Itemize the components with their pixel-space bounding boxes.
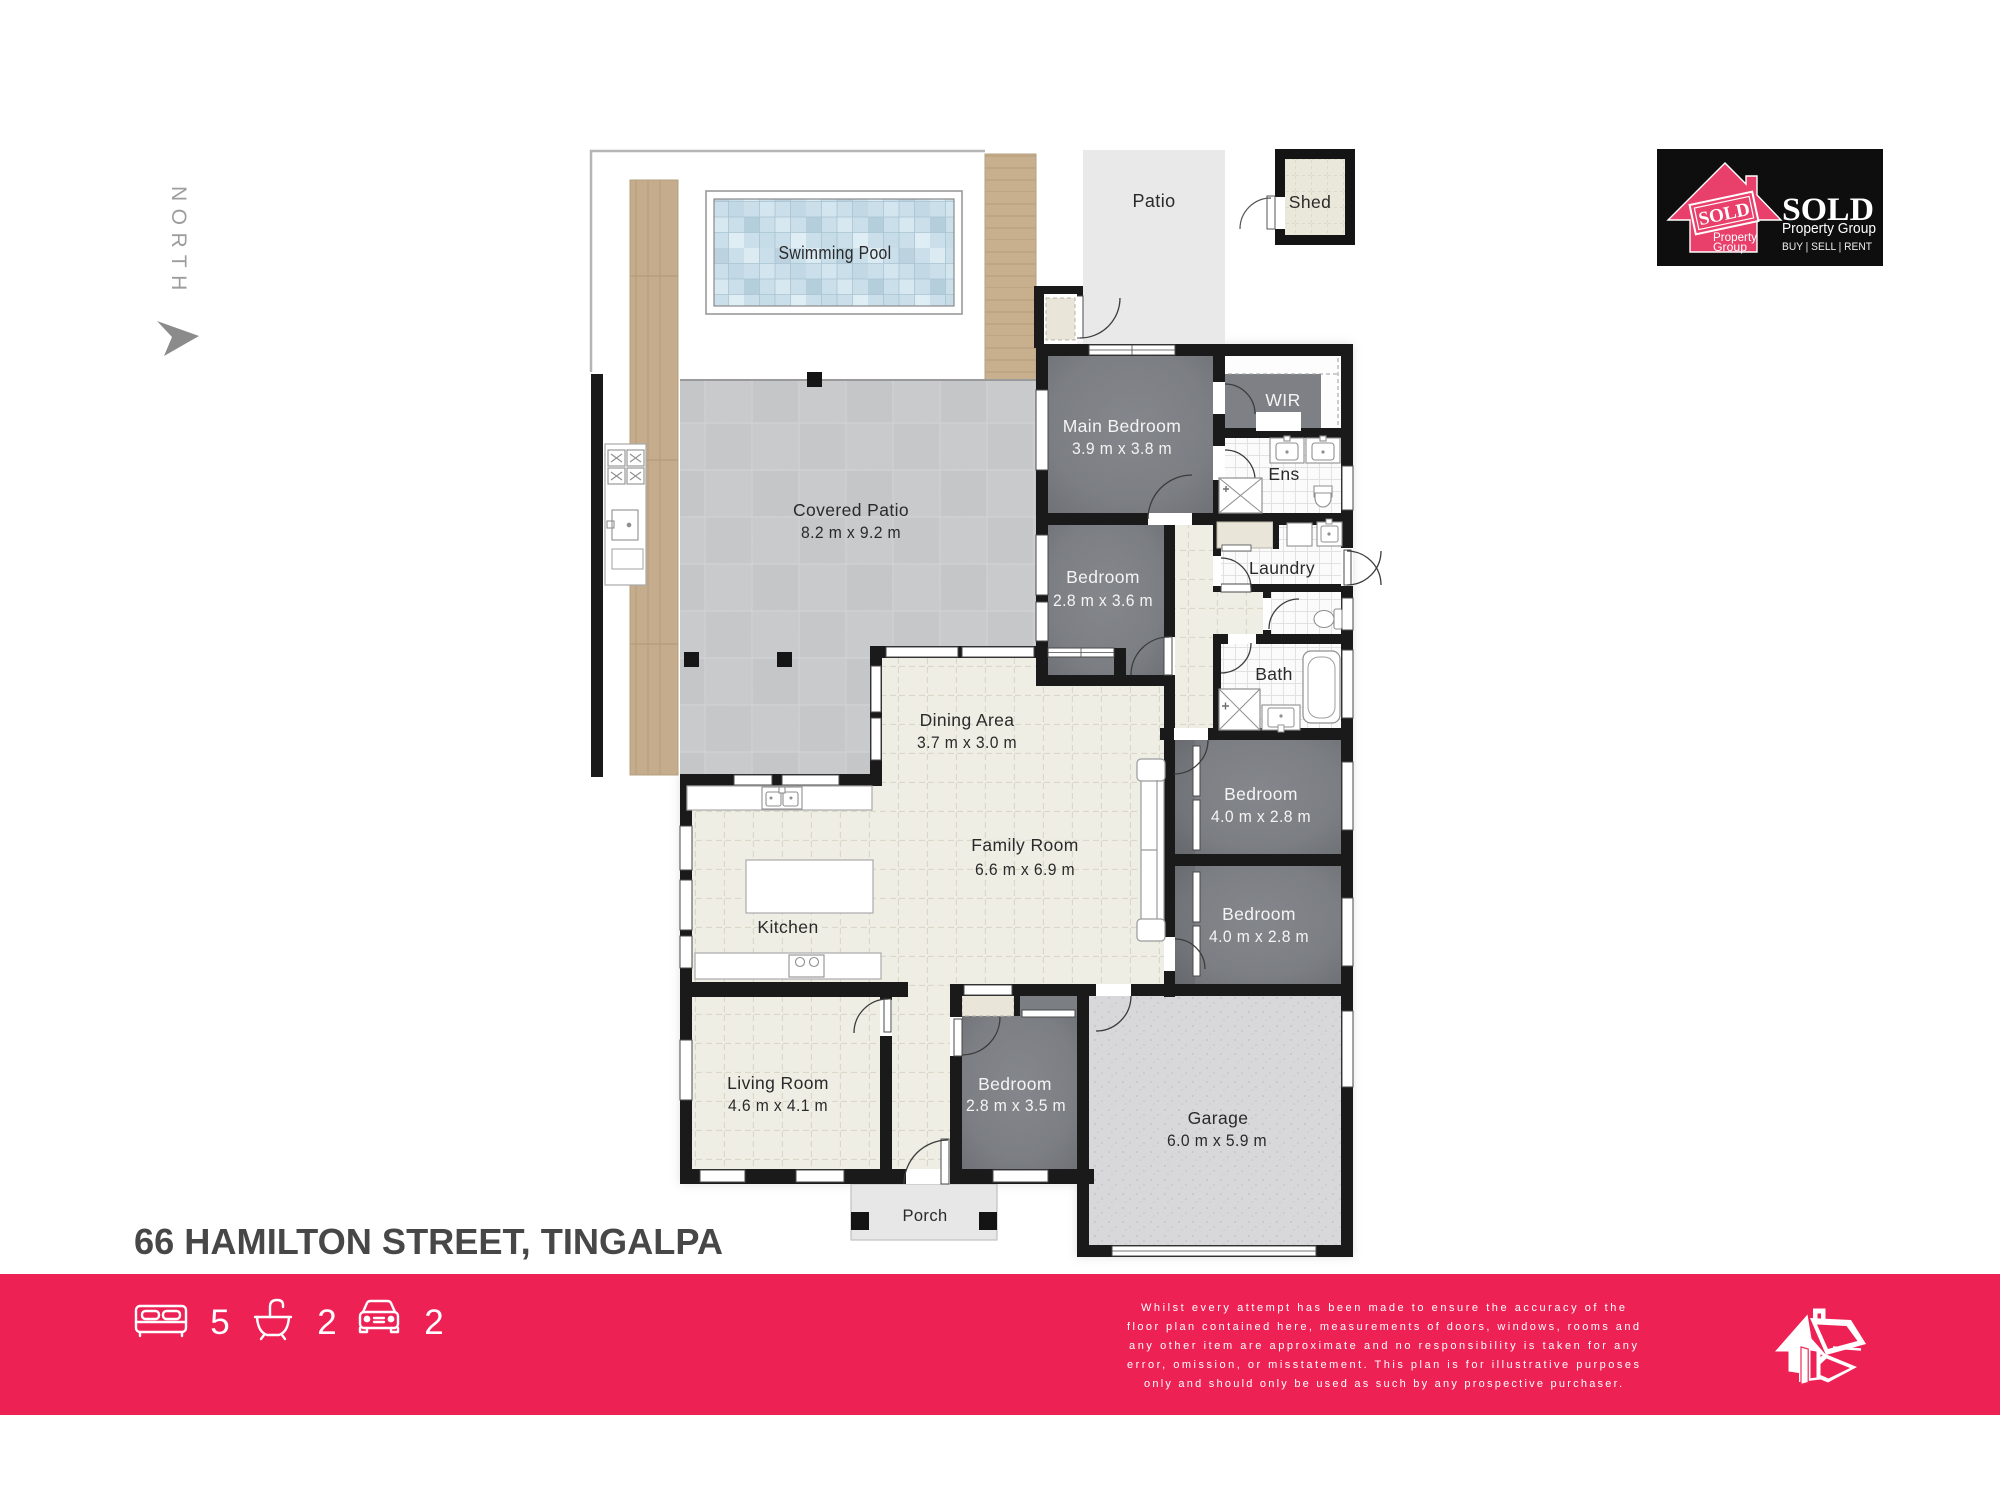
svg-text:3.9 m x 3.8 m: 3.9 m x 3.8 m [1072, 439, 1172, 458]
svg-text:error, omission, or misstateme: error, omission, or misstatement. This p… [1127, 1359, 1640, 1371]
svg-text:Ens: Ens [1268, 464, 1299, 484]
svg-text:Garage: Garage [1188, 1108, 1249, 1128]
svg-text:4.0 m x 2.8 m: 4.0 m x 2.8 m [1211, 807, 1311, 826]
svg-text:Kitchen: Kitchen [757, 917, 818, 937]
svg-text:6.6 m x 6.9 m: 6.6 m x 6.9 m [975, 860, 1075, 879]
svg-text:4.6 m x 4.1 m: 4.6 m x 4.1 m [728, 1096, 828, 1115]
svg-text:BUY | SELL | RENT: BUY | SELL | RENT [1782, 241, 1872, 253]
svg-text:NORTH: NORTH [167, 186, 190, 298]
svg-text:3.7 m x 3.0 m: 3.7 m x 3.0 m [917, 733, 1017, 752]
svg-text:Bedroom: Bedroom [978, 1074, 1052, 1094]
svg-text:Swimming Pool: Swimming Pool [779, 242, 892, 263]
svg-text:5: 5 [210, 1303, 229, 1342]
svg-text:Main Bedroom: Main Bedroom [1063, 416, 1182, 436]
svg-text:Property Group: Property Group [1782, 221, 1876, 237]
svg-text:WIR: WIR [1265, 390, 1300, 410]
svg-text:Bedroom: Bedroom [1224, 784, 1298, 804]
svg-text:Dining Area: Dining Area [920, 710, 1015, 730]
svg-text:2.8 m x 3.5 m: 2.8 m x 3.5 m [966, 1096, 1066, 1115]
svg-text:Bedroom: Bedroom [1222, 904, 1296, 924]
svg-text:8.2 m x 9.2 m: 8.2 m x 9.2 m [801, 523, 901, 542]
svg-text:Porch: Porch [902, 1207, 947, 1225]
svg-text:Patio: Patio [1132, 191, 1175, 211]
svg-text:Covered Patio: Covered Patio [793, 500, 909, 520]
svg-text:2: 2 [424, 1303, 443, 1342]
svg-text:Bedroom: Bedroom [1066, 567, 1140, 587]
svg-text:any other item are approximate: any other item are approximate and no re… [1129, 1340, 1637, 1352]
svg-text:2: 2 [317, 1303, 336, 1342]
svg-text:floor plan contained here, mea: floor plan contained here, measurements … [1127, 1321, 1639, 1333]
svg-text:Bath: Bath [1255, 664, 1293, 684]
svg-text:Group: Group [1713, 242, 1747, 254]
svg-text:Shed: Shed [1289, 192, 1331, 212]
svg-text:Family Room: Family Room [971, 835, 1078, 855]
svg-text:6.0 m x 5.9 m: 6.0 m x 5.9 m [1167, 1131, 1267, 1150]
svg-text:only and should only be used a: only and should only be used as such by … [1144, 1378, 1622, 1390]
svg-text:Living Room: Living Room [727, 1073, 829, 1093]
svg-text:66 HAMILTON STREET, TINGALPA: 66 HAMILTON STREET, TINGALPA [134, 1221, 723, 1262]
svg-text:4.0 m x 2.8 m: 4.0 m x 2.8 m [1209, 927, 1309, 946]
svg-text:Laundry: Laundry [1249, 558, 1315, 578]
svg-text:2.8 m x 3.6 m: 2.8 m x 3.6 m [1053, 591, 1153, 610]
